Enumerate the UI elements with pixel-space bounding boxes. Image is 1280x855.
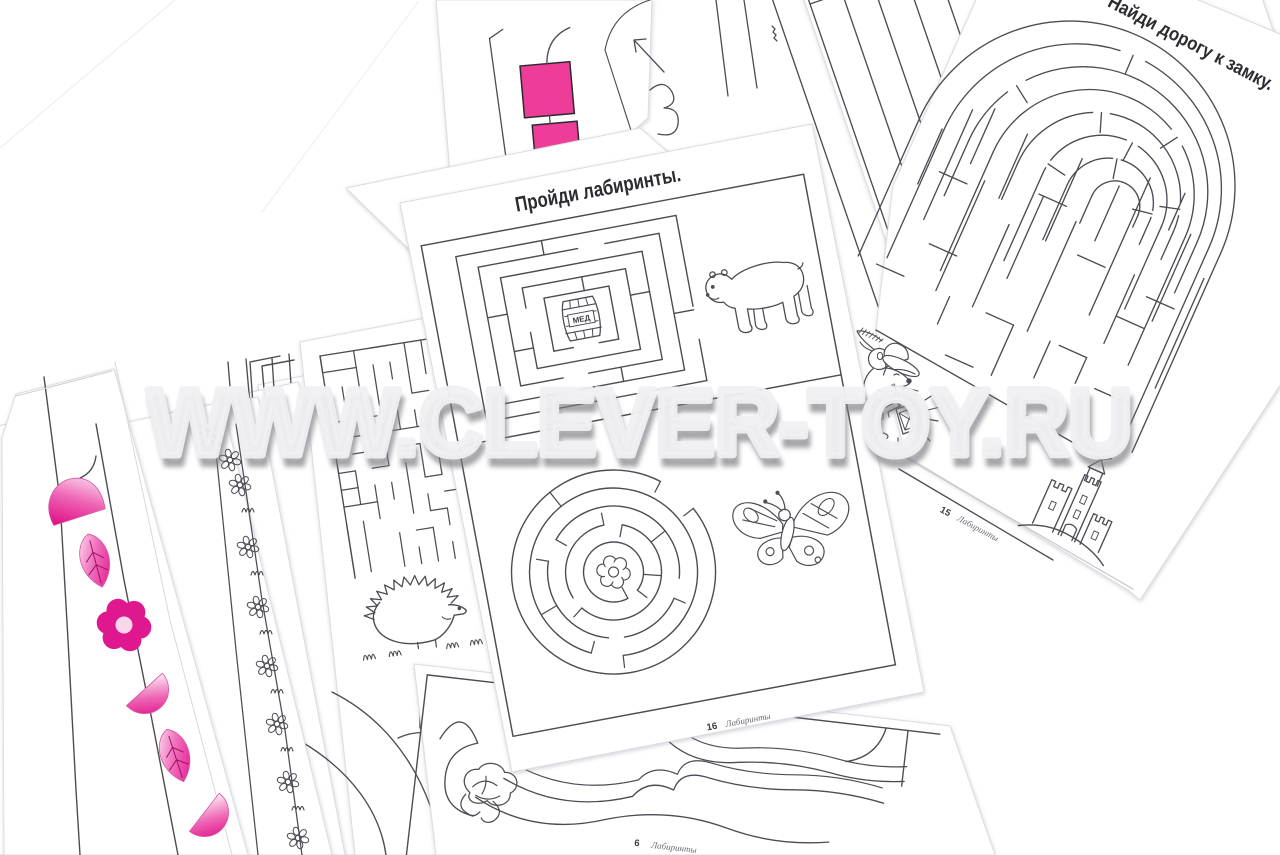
svg-text:16: 16	[706, 721, 718, 734]
svg-text:WWW.CLEVER-TOY.RU: WWW.CLEVER-TOY.RU	[148, 370, 1133, 476]
